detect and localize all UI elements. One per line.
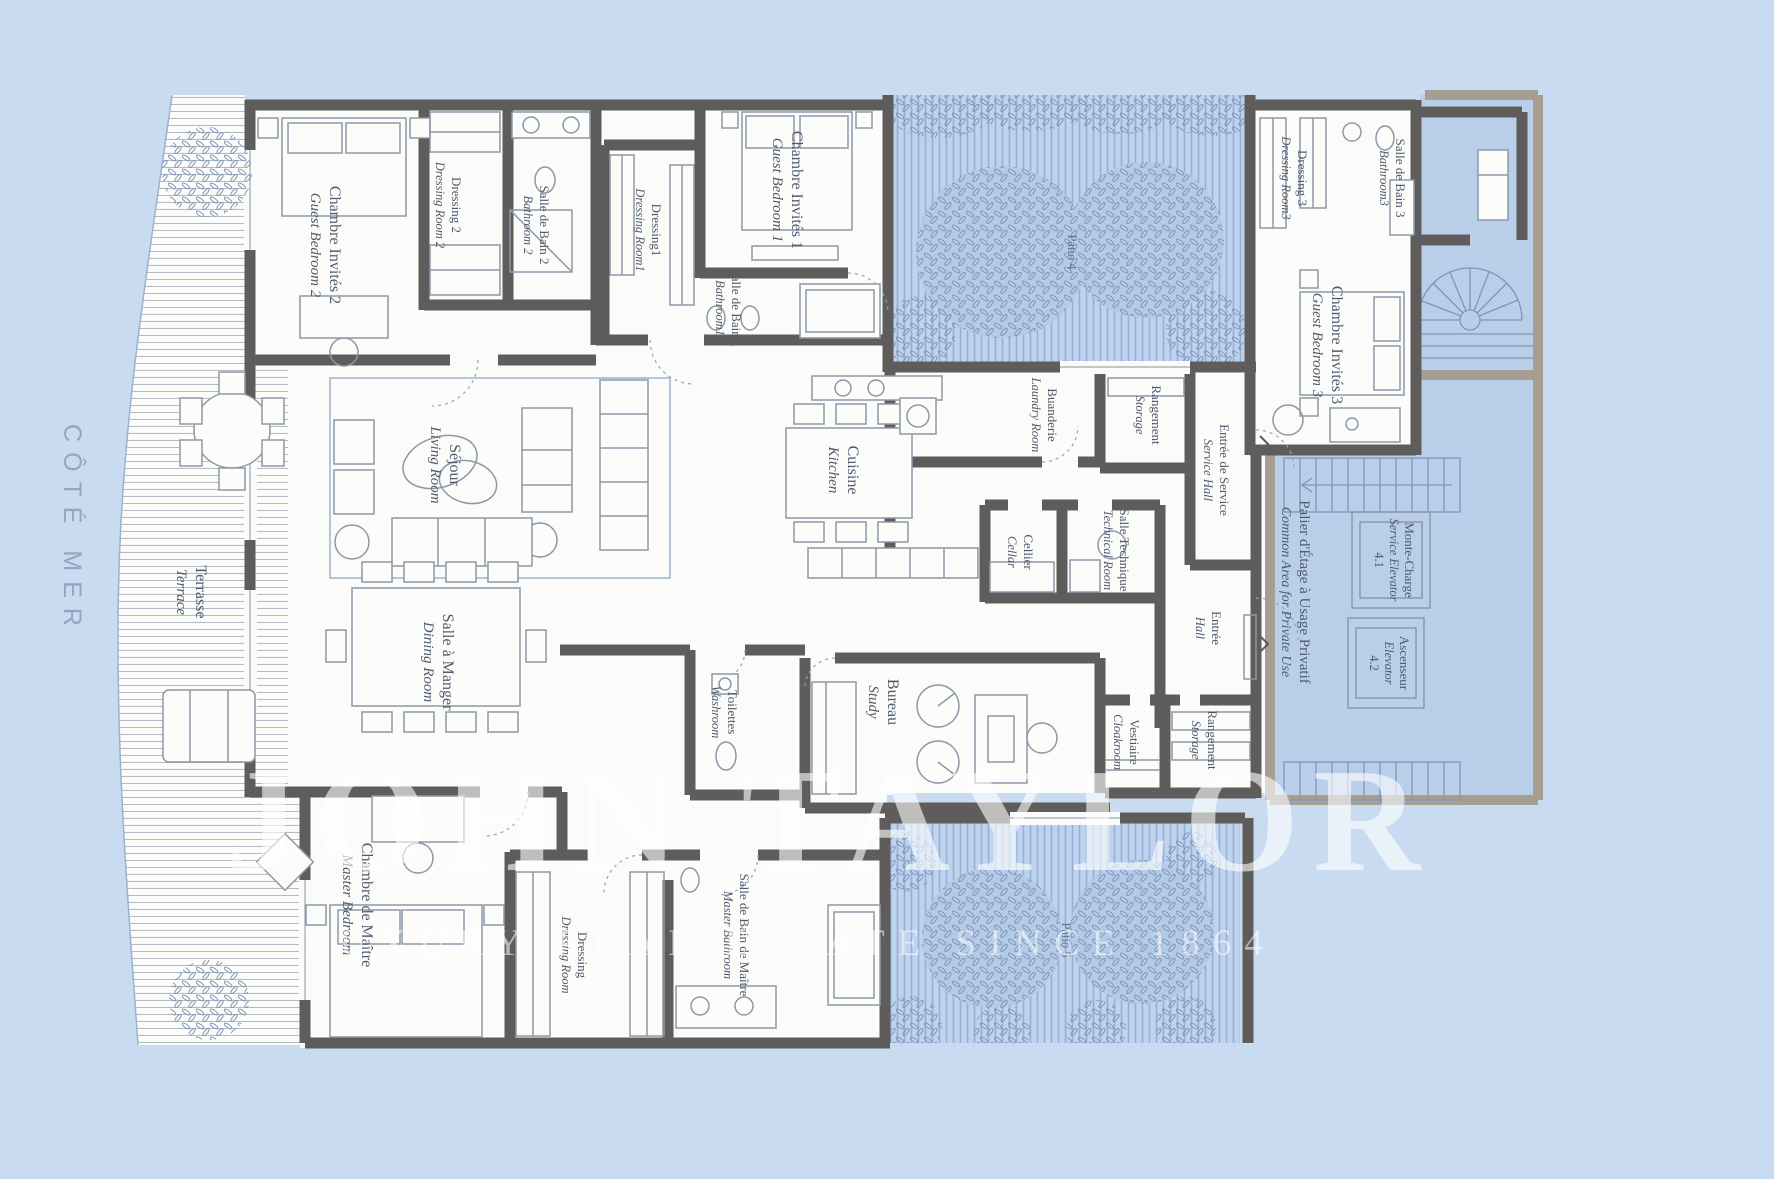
- svg-text:Guest Bedroom 3: Guest Bedroom 3: [1309, 293, 1325, 397]
- svg-text:Dressing1: Dressing1: [649, 204, 664, 257]
- svg-text:Study: Study: [865, 685, 881, 719]
- svg-text:Dressing Room 2: Dressing Room 2: [433, 161, 447, 248]
- patio-4-label: Patio 4: [1065, 234, 1079, 270]
- svg-text:Cellar: Cellar: [1005, 536, 1019, 568]
- svg-text:Guest Bedroom 2: Guest Bedroom 2: [307, 193, 323, 298]
- svg-text:Guest Bedroom 1: Guest Bedroom 1: [769, 138, 785, 242]
- svg-text:Washroom: Washroom: [709, 686, 723, 739]
- svg-text:4.2: 4.2: [1367, 655, 1381, 671]
- svg-text:Terrasse: Terrasse: [192, 565, 209, 618]
- floor-plan: CÔTÉ MER TerrasseTerrace Chambre Invités…: [0, 0, 1774, 1179]
- svg-text:Entrée: Entrée: [1209, 611, 1224, 645]
- svg-text:Salle de Bain 1: Salle de Bain 1: [729, 268, 744, 347]
- svg-text:Rangement: Rangement: [1149, 385, 1164, 445]
- svg-text:Entrée de Service: Entrée de Service: [1217, 424, 1232, 516]
- svg-text:Monte-Charge: Monte-Charge: [1402, 522, 1417, 598]
- svg-text:Service Elevator: Service Elevator: [1387, 519, 1401, 602]
- svg-text:Elevator: Elevator: [1382, 640, 1396, 684]
- desk: [300, 296, 388, 338]
- svg-text:Palier d'Étage à Usage Privati: Palier d'Étage à Usage Privatif: [1296, 500, 1313, 683]
- svg-text:Bureau: Bureau: [884, 679, 901, 725]
- watermark: JOHN TAYLOR LUXURY REAL ESTATE SINCE 186…: [226, 739, 1434, 964]
- svg-text:Salle à Manger: Salle à Manger: [439, 614, 456, 712]
- svg-text:Storage: Storage: [1133, 396, 1147, 435]
- svg-text:Living Room: Living Room: [427, 425, 443, 503]
- watermark-tagline: LUXURY REAL ESTATE SINCE 1864: [304, 923, 1276, 964]
- watermark-brand: JOHN TAYLOR: [226, 739, 1434, 903]
- svg-text:Technical Room: Technical Room: [1101, 510, 1115, 590]
- svg-text:4.1: 4.1: [1372, 552, 1386, 568]
- shrub: [1166, 290, 1246, 370]
- svg-text:Cellier: Cellier: [1021, 534, 1036, 570]
- svg-text:Buanderie: Buanderie: [1045, 388, 1060, 442]
- svg-text:Bathroom3: Bathroom3: [1377, 150, 1391, 206]
- laundry-fixtures: [900, 398, 936, 434]
- svg-text:Salle de Bain 2: Salle de Bain 2: [537, 185, 552, 264]
- svg-text:Chambre Invités 2: Chambre Invités 2: [326, 186, 343, 304]
- svg-text:Service Hall: Service Hall: [1201, 439, 1215, 502]
- svg-text:Bathroom1: Bathroom1: [713, 280, 727, 336]
- svg-text:Dressing Room1: Dressing Room1: [633, 187, 647, 271]
- svg-text:Salle de Bain 3: Salle de Bain 3: [1393, 138, 1408, 217]
- svg-text:Bathroom 2: Bathroom 2: [521, 196, 535, 255]
- svg-text:Dining Room: Dining Room: [420, 621, 436, 703]
- svg-text:Kitchen: Kitchen: [825, 446, 841, 494]
- svg-text:Séjour: Séjour: [446, 444, 463, 486]
- svg-text:Laundry Room: Laundry Room: [1029, 377, 1043, 453]
- plant: [162, 127, 252, 217]
- round-table: [194, 392, 270, 468]
- svg-text:Chambre Invités 1: Chambre Invités 1: [788, 131, 805, 249]
- svg-text:Cuisine: Cuisine: [844, 446, 861, 495]
- svg-text:Toilettes: Toilettes: [725, 690, 740, 735]
- svg-text:Terrace: Terrace: [173, 569, 189, 615]
- plant: [169, 960, 249, 1040]
- washing-machine: [900, 398, 936, 434]
- sea-side-label: CÔTÉ MER: [58, 424, 87, 636]
- svg-text:Dressing Room3: Dressing Room3: [1279, 135, 1293, 219]
- svg-text:Common Area for Private Use: Common Area for Private Use: [1278, 507, 1293, 677]
- svg-text:Dressing 2: Dressing 2: [449, 177, 464, 233]
- patio-4: [884, 75, 1262, 370]
- svg-text:Salle Technique: Salle Technique: [1117, 509, 1132, 592]
- svg-text:Chambre Invités 3: Chambre Invités 3: [1328, 286, 1345, 404]
- svg-text:Hall: Hall: [1193, 616, 1207, 640]
- shrub: [884, 296, 956, 368]
- svg-text:Dressing 3: Dressing 3: [1295, 150, 1310, 206]
- svg-text:Ascenseur: Ascenseur: [1397, 636, 1412, 691]
- floor-plan-drawing: CÔTÉ MER TerrasseTerrace Chambre Invités…: [0, 0, 1774, 1179]
